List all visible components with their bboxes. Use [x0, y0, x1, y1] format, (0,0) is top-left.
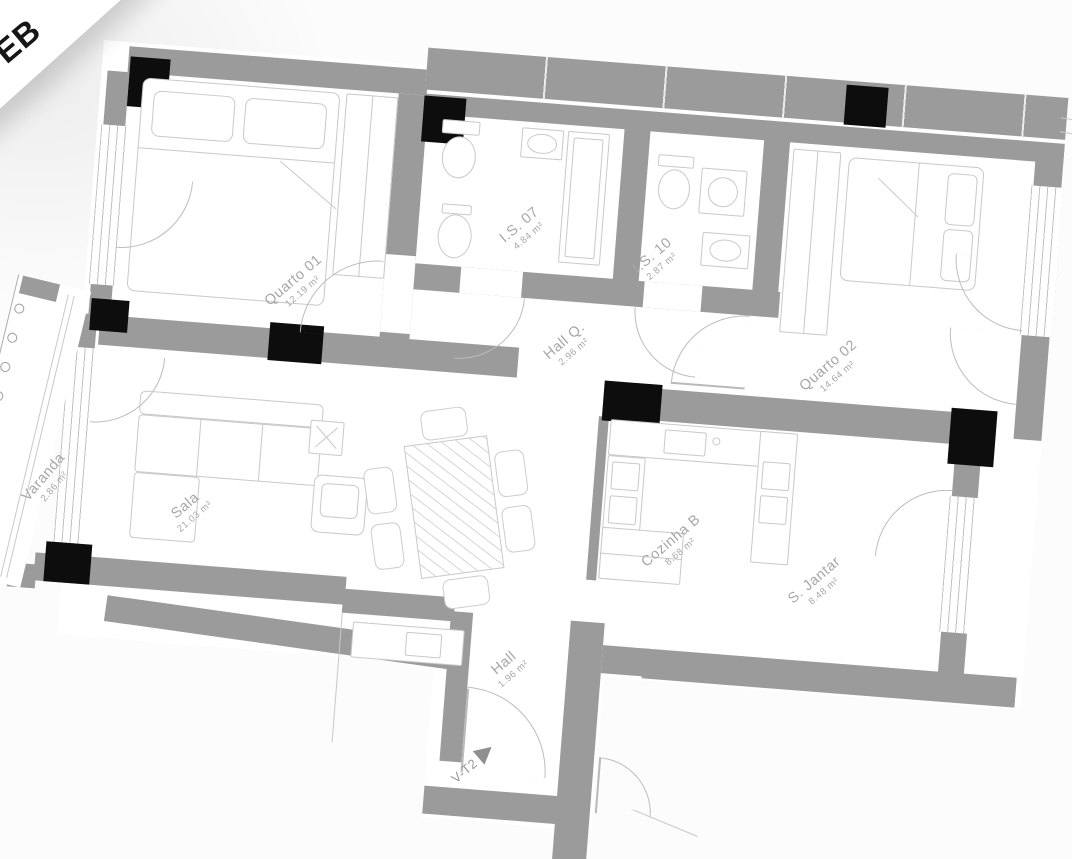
chair [370, 521, 406, 571]
appliance [758, 495, 788, 525]
balustrade-post [0, 390, 4, 402]
chair [501, 504, 537, 554]
chair [442, 574, 492, 610]
column [43, 541, 92, 584]
floor-plan: Quarto 01 12.19 m² I.S. 07 4.84 m² I.S. … [0, 12, 1072, 859]
pillow [151, 90, 236, 142]
wall [19, 276, 60, 302]
column [89, 298, 129, 333]
appliance [608, 495, 638, 525]
column [844, 85, 889, 128]
kitchen-sink [663, 429, 707, 456]
cooktop [610, 461, 640, 491]
toilet-tank [442, 119, 481, 136]
dining-table [404, 435, 505, 579]
chair [419, 406, 469, 442]
corridor-line [633, 809, 698, 837]
dining-set [341, 391, 557, 626]
balustrade-post [13, 303, 25, 315]
door-opening [380, 254, 416, 334]
column [602, 381, 663, 425]
pillow [242, 97, 327, 149]
balustrade-post [0, 361, 11, 373]
neighbor-sink [405, 632, 443, 659]
balustrade-post [6, 332, 18, 344]
chair [362, 466, 398, 516]
floor-plan-page: Quarto 01 12.19 m² I.S. 07 4.84 m² I.S. … [0, 0, 1072, 859]
appliance [761, 461, 791, 491]
chair [493, 449, 529, 499]
pillow [944, 173, 978, 227]
door-swing-arc [595, 757, 655, 817]
column [947, 408, 997, 467]
